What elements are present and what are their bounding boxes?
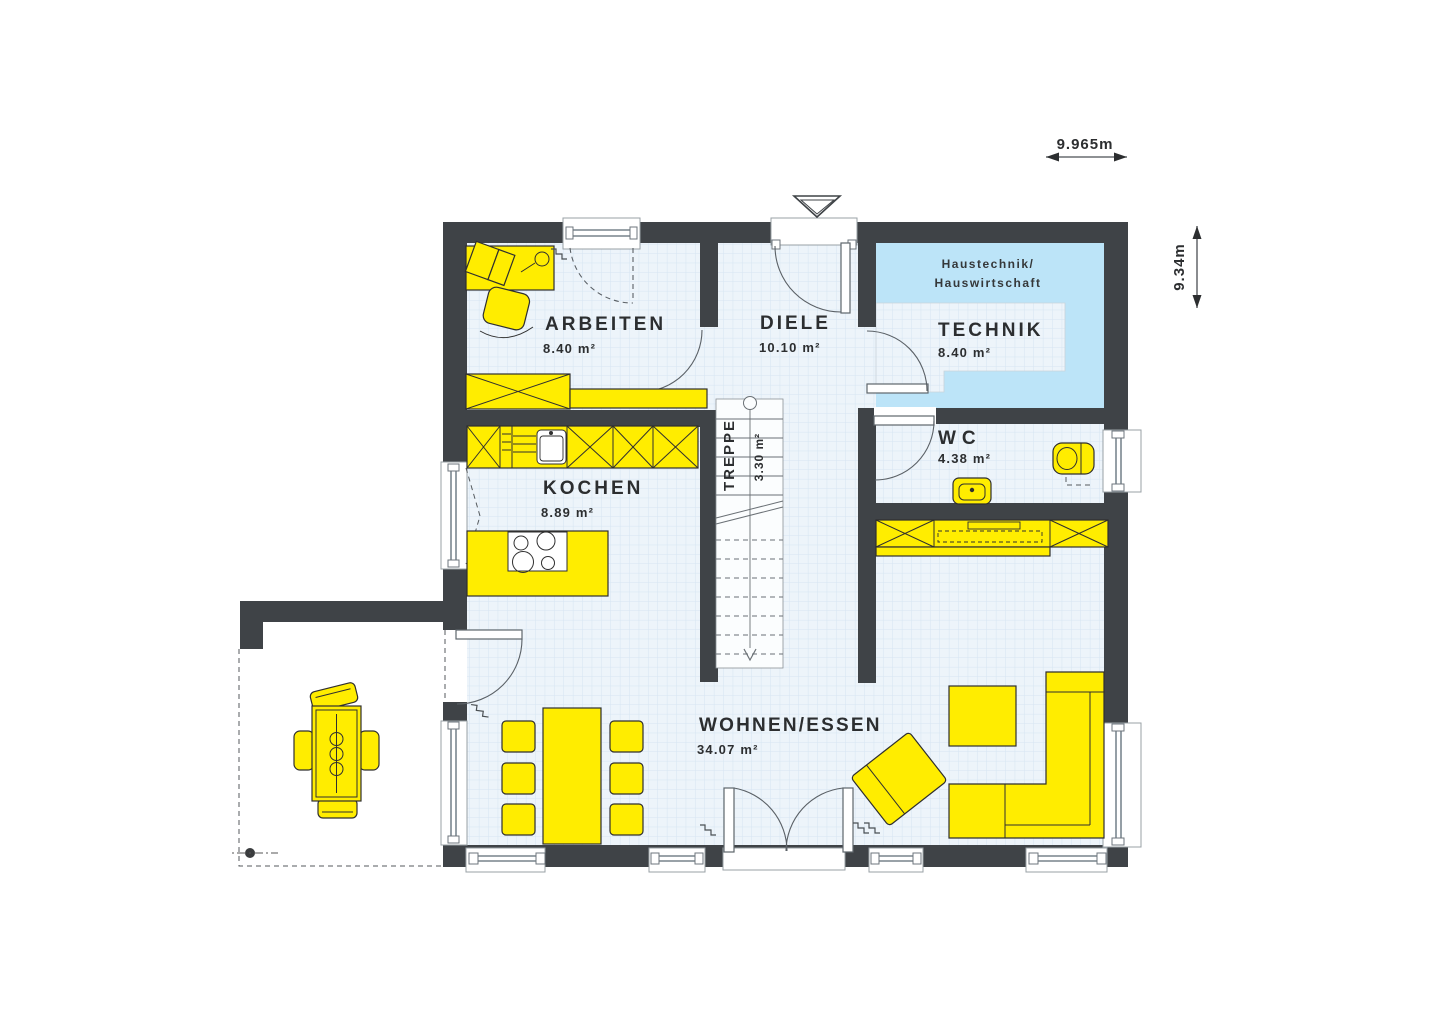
- dining-chair: [610, 763, 643, 794]
- terrace-privacy-wall: [240, 601, 447, 622]
- dining-chair: [610, 721, 643, 752]
- window-bottom-2: [649, 848, 705, 872]
- technik-note-2: Hauswirtschaft: [934, 276, 1041, 290]
- dimension-width-label: 9.965m: [1057, 136, 1114, 153]
- dining-chair: [502, 721, 535, 752]
- room-area-technik: 8.40 m²: [938, 345, 991, 360]
- window-wc-right: [1103, 430, 1141, 492]
- window-bottom-1: [466, 848, 545, 872]
- window-bottom-3: [869, 848, 923, 872]
- dimension-height-label: 9.34m: [1171, 243, 1188, 291]
- room-area-arbeiten: 8.40 m²: [543, 341, 596, 356]
- room-name-technik: TECHNIK: [938, 320, 1043, 341]
- technik-note-1: Haustechnik/: [942, 257, 1035, 271]
- room-name-wohnen: WOHNEN/ESSEN: [699, 715, 882, 736]
- floor-plan-canvas: ARBEITEN 8.40 m² DIELE 10.10 m² Haustech…: [0, 0, 1440, 1019]
- dining-chair: [502, 763, 535, 794]
- wall-stair-kitchen: [700, 410, 718, 682]
- window-left-lower: [441, 721, 467, 845]
- terrace-chair-bottom: [318, 799, 357, 818]
- dining-chair: [610, 804, 643, 835]
- terrace-door-opening: [443, 630, 467, 702]
- room-area-treppe: 3.30 m²: [752, 433, 766, 481]
- room-area-wohnen: 34.07 m²: [697, 742, 759, 757]
- wall-wc-bottom: [858, 503, 1104, 522]
- wall-diele-technik: [858, 243, 876, 327]
- floor-plan-page: ARBEITEN 8.40 m² DIELE 10.10 m² Haustech…: [0, 0, 1440, 1019]
- dining-chair: [502, 804, 535, 835]
- coffee-table: [949, 686, 1016, 746]
- arbeiten-shelf: [570, 389, 707, 408]
- room-name-wc: WC: [938, 428, 982, 449]
- wall-hall-living: [858, 424, 876, 683]
- room-area-wc: 4.38 m²: [938, 451, 991, 466]
- kitchen-sink: [537, 430, 566, 464]
- room-area-diele: 10.10 m²: [759, 340, 821, 355]
- wall-arbeiten-diele: [700, 243, 718, 327]
- room-area-kochen: 8.89 m²: [541, 505, 594, 520]
- wall-arbeiten-bottom: [443, 410, 718, 427]
- window-bottom-4: [1026, 848, 1107, 872]
- terrace-chair-right: [359, 731, 379, 770]
- stair-start-marker: [744, 397, 757, 410]
- terrace-privacy-wall-end: [240, 601, 263, 649]
- living-sideboard: [876, 520, 1108, 547]
- toilet: [1053, 443, 1094, 474]
- room-name-kochen: KOCHEN: [543, 478, 643, 499]
- room-name-treppe: TREPPE: [721, 419, 738, 491]
- terrace-chair-left: [294, 731, 314, 770]
- furniture-dining: [502, 708, 643, 844]
- faucet: [549, 431, 553, 435]
- dining-table: [543, 708, 601, 844]
- room-name-diele: DIELE: [760, 313, 831, 334]
- room-name-arbeiten: ARBEITEN: [545, 314, 666, 335]
- window-living-right: [1103, 723, 1141, 847]
- kitchen-counter: [467, 426, 698, 468]
- garden-door-threshold: [723, 848, 845, 870]
